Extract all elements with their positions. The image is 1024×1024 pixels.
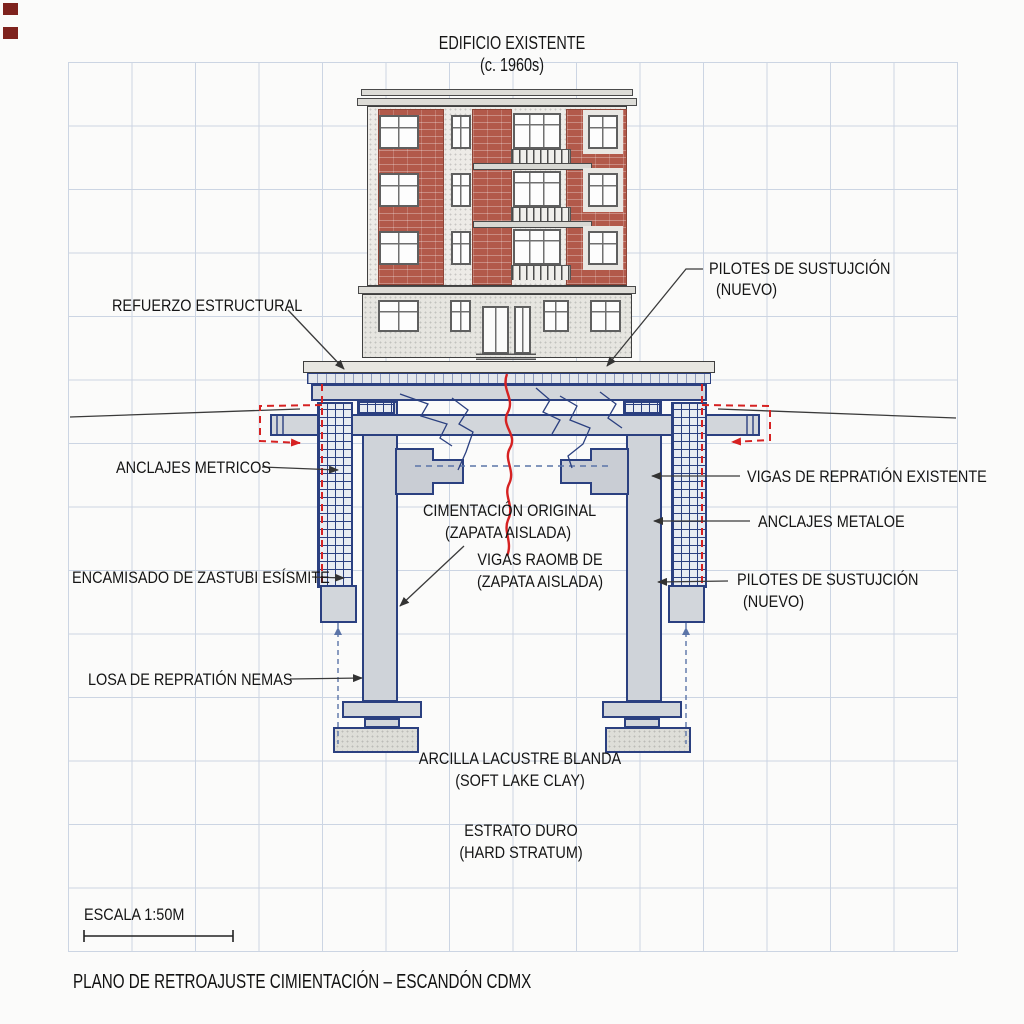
window: [379, 173, 419, 207]
label-cimentacion-line2: (ZAPATA AISLADA): [423, 523, 593, 543]
roof-cornice: [361, 89, 633, 96]
anchor-hatch-right: [623, 401, 661, 415]
page-subtitle: (c. 1960s): [352, 55, 672, 76]
floor-band: [358, 286, 636, 294]
window: [451, 231, 471, 265]
roof-cornice: [357, 98, 637, 106]
window: [451, 173, 471, 207]
label-pilotes-mid-line1: PILOTES DE SUSTUJCIÓN: [737, 570, 918, 590]
sidewalk-slab: [303, 361, 715, 373]
left-pile-jacket: [317, 402, 353, 588]
label-encamisado: ENCAMISADO DE ZASTUBI ESÍSMITE: [72, 568, 330, 588]
label-pilotes-top-line1: PILOTES DE SUSTUJCIÓN: [709, 259, 890, 279]
balcony-slab: [473, 221, 592, 228]
label-estrato-line2: (HARD STRATUM): [415, 843, 628, 863]
window: [451, 115, 471, 149]
footer-title: PLANO DE RETROAJUSTE CIMIENTACIÓN – ESCA…: [73, 971, 531, 994]
label-estrato-line1: ESTRATO DURO: [415, 821, 628, 841]
window: [588, 173, 618, 207]
entry-door: [514, 306, 531, 354]
window: [379, 231, 419, 265]
anchor-hatch-left: [357, 401, 395, 415]
right-pile-cap: [602, 701, 682, 718]
right-pile-block: [668, 585, 705, 623]
label-vigas-reparticion-existente: VIGAS DE REPRATIÓN EXISTENTE: [747, 467, 987, 487]
left-footing: [333, 727, 419, 753]
entry-door: [482, 306, 509, 354]
corner-mark: [3, 27, 18, 39]
window: [588, 115, 618, 149]
brick-panel: [472, 109, 512, 285]
grade-beam: [311, 384, 707, 401]
label-pilotes-top-line2: (NUEVO): [716, 280, 777, 300]
existing-slab: [307, 373, 711, 384]
label-pilotes-mid-line2: (NUEVO): [743, 592, 804, 612]
balcony-window: [513, 171, 561, 207]
scale-label: ESCALA 1:50M: [84, 905, 184, 925]
window: [543, 300, 569, 332]
page-title: EDIFICIO EXISTENTE: [352, 33, 672, 54]
label-arcilla-line2: (SOFT LAKE CLAY): [414, 771, 627, 791]
balcony-railing: [511, 207, 571, 222]
label-losa-reparticion: LOSA DE REPRATIÓN NEMAS: [88, 670, 292, 690]
right-pile-jacket: [671, 402, 707, 588]
left-pile-block: [320, 585, 357, 623]
label-vigas-raomb-line2: (ZAPATA AISLADA): [455, 572, 625, 592]
label-anclajes-metricos: ANCLAJES METRICOS: [116, 458, 271, 478]
balcony-railing: [511, 149, 571, 164]
label-vigas-raomb-line1: VIGAS RAOMB DE: [455, 550, 625, 570]
left-pile-cap: [342, 701, 422, 718]
window: [588, 231, 618, 265]
balcony-railing: [511, 265, 571, 280]
window: [590, 300, 621, 332]
balcony-slab: [473, 163, 592, 170]
label-cimentacion-line1: CIMENTACIÓN ORIGINAL: [423, 501, 593, 521]
window: [378, 300, 419, 332]
corner-mark: [3, 3, 18, 15]
label-anclajes-metaloe: ANCLAJES METALOE: [758, 512, 905, 532]
right-column: [626, 401, 662, 702]
window: [379, 115, 419, 149]
window: [450, 300, 471, 332]
balcony-window: [513, 113, 561, 149]
balcony-window: [513, 229, 561, 265]
label-refuerzo-estructural: REFUERZO ESTRUCTURAL: [112, 296, 302, 316]
label-arcilla-line1: ARCILLA LACUSTRE BLANDA: [414, 749, 627, 769]
left-column: [362, 401, 398, 702]
